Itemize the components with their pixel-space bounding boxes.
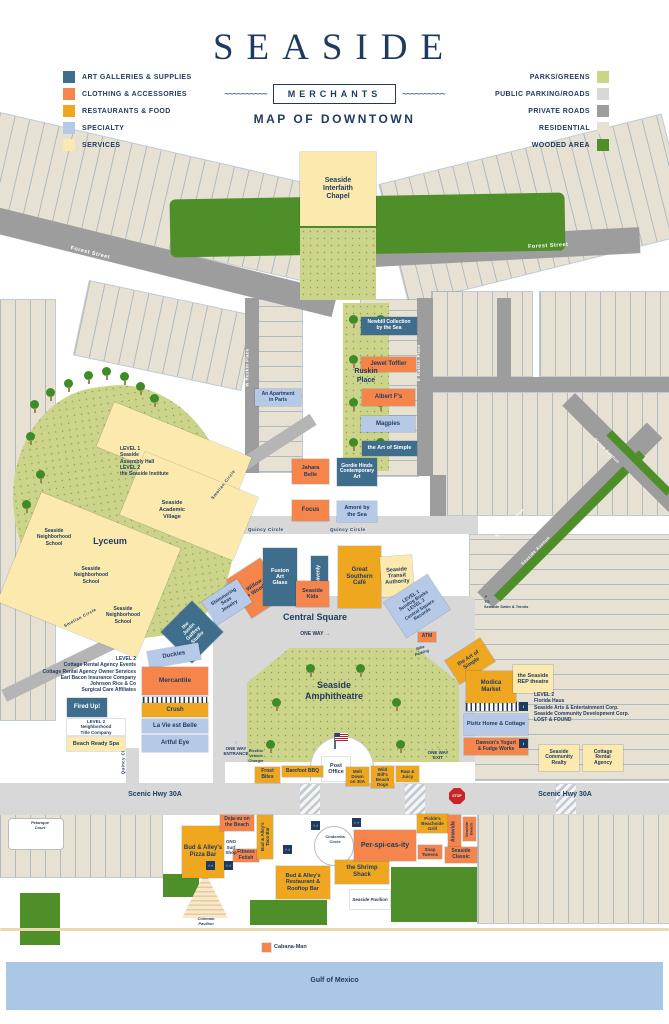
- legend-swatch: [63, 71, 75, 83]
- north-south-road-east: [497, 298, 511, 378]
- dune-green-right: [391, 867, 477, 922]
- legend-swatch: [63, 122, 75, 134]
- la-vie-est-belle: La Vie est Belle: [142, 719, 208, 733]
- seaside-neighborhood-school-2-line: School: [70, 579, 112, 585]
- coleman-pavilion: ColemanPavilion: [185, 916, 227, 926]
- florida-haus-lost-and-found: LEVEL 2Florida HausSeaside Arts & Entert…: [534, 692, 640, 723]
- tree-icon: [349, 315, 358, 324]
- bud-and-alleys-restaurant-rooftop-bar: Bud & Alley's Restaurant & Rooftop Bar: [276, 866, 330, 899]
- cottage-rental-agency: Cottage Rental Agency: [583, 745, 623, 771]
- assembly-hall-institute: LEVEL 1SeasideAssembly HallLEVEL 2the Se…: [120, 446, 192, 477]
- artful-eye: Artful Eye: [142, 735, 208, 752]
- quincy-circle-east: Quincy Circle: [330, 527, 366, 532]
- cinderella-circle: CinderellaCircle: [317, 834, 353, 844]
- albert-fs: Albert F's: [362, 389, 415, 406]
- cross-road-east: [417, 377, 669, 392]
- frost-bites: Frost Bites: [255, 767, 280, 783]
- seaside-neighborhood-school-1: SeasideNeighborhoodSchool: [33, 528, 75, 547]
- legend-swatch: [597, 122, 609, 134]
- wave-ornament-left: ~~~~~~~~~~: [224, 89, 267, 99]
- ruskin-place-label-line: Ruskin: [341, 368, 391, 377]
- entrance-one-way: ↑ONE WAYENTRANCE: [214, 740, 258, 757]
- legend-label: CLOTHING & ACCESSORIES: [82, 91, 187, 98]
- duckies: Duckies: [147, 643, 201, 669]
- legend-swatch: [63, 105, 75, 117]
- amphitheatre-label-line: Amphitheatre: [288, 691, 380, 702]
- dune-green-mid: [250, 900, 327, 925]
- page-title: SEASIDE: [0, 26, 669, 69]
- raw-and-juicy: Raw & Juicy: [396, 766, 419, 782]
- wild-bills-beach-dogs: Wild Bill's Beach Dogs: [371, 766, 394, 788]
- legend-swatch: [63, 88, 75, 100]
- restroom-icon: ♀♂: [311, 821, 320, 830]
- gulf-of-mexico: Gulf of Mexico: [0, 977, 669, 986]
- electric-vehicle-charger-line: Charger: [240, 758, 272, 763]
- legend-row: PARKS/GREENS: [530, 71, 609, 83]
- legend-label: SERVICES: [82, 142, 120, 149]
- tree-icon: [30, 400, 39, 409]
- tree-icon: [356, 664, 365, 673]
- legend-row: RESIDENTIAL: [539, 122, 609, 134]
- pizitz-home-and-cottage: Pizitz Home & Cottage: [464, 714, 528, 735]
- amavida: Amavida: [448, 815, 461, 848]
- legend-row: SPECIALTY: [63, 122, 192, 134]
- neighborhood-title-company: LEVEL 2 Neighborhood Title Company: [67, 719, 125, 735]
- jahara-belle: Jahara Belle: [292, 459, 329, 484]
- restroom-icon: ♀♂: [283, 845, 292, 854]
- seaside-neighborhood-school-3-line: School: [100, 619, 146, 625]
- exit-one-way: ↓ONE WAYEXIT: [418, 744, 458, 761]
- legend-row: PUBLIC PARKING/ROADS: [495, 88, 609, 100]
- tree-icon: [272, 698, 281, 707]
- to-seaside-swim-tennis-line: Seaside Swim & Tennis: [484, 604, 556, 609]
- legend-row: RESTAURANTS & FOOD: [63, 105, 192, 117]
- tree-icon: [26, 432, 35, 441]
- e-ruskin-place: E Ruskin Place: [416, 344, 421, 381]
- fusion-art-glass: Fusion Art Glass: [263, 548, 297, 606]
- legend-swatch: [63, 139, 75, 151]
- lyceum-label-line: Lyceum: [80, 536, 140, 547]
- quincy-circle-west: Quincy Circle: [248, 527, 284, 532]
- seaside-neighborhood-school-1-line: School: [33, 541, 75, 547]
- tree-icon: [136, 382, 145, 391]
- scenic-hwy-30a-east: Scenic Hwy 30A: [500, 791, 630, 800]
- seaside-neighborhood-school-1-line: Neighborhood: [33, 534, 75, 540]
- assembly-hall-institute-line: the Seaside Institute: [120, 471, 192, 477]
- us-flag-icon: [335, 733, 348, 741]
- seaside-academic-village: SeasideAcademicVillage: [144, 500, 200, 521]
- lyceum-label: Lyceum: [80, 536, 140, 547]
- beach-ready-spa: Beach Ready Spa: [67, 737, 125, 751]
- tree-icon: [349, 438, 358, 447]
- seaside-neighborhood-school-3: SeasideNeighborhoodSchool: [100, 606, 146, 625]
- restroom-icon: ♀♂: [352, 818, 361, 827]
- legend-swatch: [597, 71, 609, 83]
- seaside-academic-village-line: Village: [144, 514, 200, 521]
- mercantile: Mercantile: [142, 667, 208, 695]
- legend-label: PRIVATE ROADS: [528, 108, 590, 115]
- seaside-neighborhood-school-3-line: Neighborhood: [100, 612, 146, 618]
- newbill-collection-by-the-sea: Newbill Collection by the Sea: [361, 317, 417, 335]
- legend-label: PARKS/GREENS: [530, 74, 590, 81]
- scenic-hwy-30a-west-line: Scenic Hwy 30A: [90, 791, 220, 800]
- residential-beach-east: [478, 815, 669, 923]
- the-seaside-rep-theatre: the Seaside REP theatre: [513, 665, 553, 693]
- cabana-man: Cabana-Man: [274, 944, 326, 951]
- the-art-of-simple-ruskin: the Art of Simple: [362, 441, 417, 456]
- wave-ornament-right: ~~~~~~~~~~: [402, 89, 445, 99]
- legend-swatch: [597, 105, 609, 117]
- the-shrimp-shack: the Shrimp Shack: [335, 860, 389, 884]
- legend-right: PARKS/GREENSPUBLIC PARKING/ROADSPRIVATE …: [495, 71, 609, 151]
- crosswalk: [300, 784, 320, 814]
- legend-row: ART GALLERIES & SUPPLIES: [63, 71, 192, 83]
- amphitheatre-label-line: Seaside: [288, 680, 380, 691]
- legend-row: PRIVATE ROADS: [528, 105, 609, 117]
- dune-green-left: [20, 893, 60, 945]
- crosswalk: [405, 784, 425, 814]
- one-way-center: ONE WAY →: [282, 631, 348, 637]
- seaside-interfaith-chapel: Seaside Interfaith Chapel: [300, 152, 376, 226]
- seaside-beach: Seaside Beach: [463, 817, 476, 841]
- snap-tweens: Snap Tweens: [418, 845, 442, 859]
- deja-vu-on-the-beach: Deja-vu on the Beach: [220, 815, 254, 831]
- cottage-rental-agency-events-line: Cottage Rental Agency Owner Services: [28, 669, 136, 675]
- quincy-circle-road-south: [126, 748, 139, 783]
- cottage-rental-agency-events-line: Surgical Care Affiliates: [28, 687, 136, 693]
- fired-up: Fired Up!: [67, 698, 107, 717]
- tree-icon: [349, 398, 358, 407]
- focus: Focus: [292, 500, 329, 521]
- petanque-court: PetanqueCourt: [16, 820, 64, 830]
- amphitheatre-label: SeasideAmphitheatre: [288, 680, 380, 703]
- ruskin-to-quincy-road: [430, 475, 446, 521]
- per-spi-cas-ity: Per-spi-cas-ity: [354, 830, 416, 861]
- seaside-neighborhood-school-2-line: Neighborhood: [70, 572, 112, 578]
- central-square-label: Central Square: [268, 612, 362, 623]
- seaside-neighborhood-school-2: SeasideNeighborhoodSchool: [70, 566, 112, 585]
- info-icon: i: [519, 739, 528, 748]
- legend-left: ART GALLERIES & SUPPLIESCLOTHING & ACCES…: [63, 71, 192, 151]
- residential-forest-left: [74, 281, 256, 390]
- tree-icon: [150, 394, 159, 403]
- ono-surf-shop-line: Shop: [219, 850, 243, 856]
- tree-icon: [396, 740, 405, 749]
- legend-label: PUBLIC PARKING/ROADS: [495, 91, 590, 98]
- legend-swatch: [597, 139, 609, 151]
- central-square-label-line: Central Square: [268, 612, 362, 623]
- petanque-court-line: Court: [16, 825, 64, 830]
- magpies: Magpies: [361, 416, 415, 432]
- seaside-merchants-map: SEASIDE ~~~~~~~~~~ MERCHANTS ~~~~~~~~~~ …: [0, 0, 669, 1024]
- tree-icon: [46, 388, 55, 397]
- scenic-hwy-30a-east-line: Scenic Hwy 30A: [500, 791, 630, 800]
- seaside-kids: Seaside Kids: [296, 581, 329, 607]
- exit-one-way-line: EXIT: [418, 755, 458, 761]
- tree-icon: [84, 371, 93, 380]
- one-way-center-line: ONE WAY →: [282, 631, 348, 637]
- cabana-man-marker: [262, 943, 271, 952]
- an-apartment-in-paris: An Apartment in Paris: [255, 389, 301, 406]
- seaside-academic-village-line: Seaside: [144, 500, 200, 507]
- legend-row: CLOTHING & ACCESSORIES: [63, 88, 192, 100]
- stop-sign: STOP: [449, 788, 465, 804]
- amore-by-the-sea: Amoré by the Sea: [337, 501, 377, 522]
- tree-icon: [22, 500, 31, 509]
- legend-label: WOODED AREA: [532, 142, 590, 149]
- w-ruskin-place: W Ruskin Place: [245, 348, 250, 386]
- scenic-hwy-30a-west: Scenic Hwy 30A: [90, 791, 220, 800]
- seaside-community-realty: Seaside Community Realty: [539, 745, 579, 771]
- cottage-rental-agency-events: LEVEL 2Cottage Rental Agency EventsCotta…: [28, 656, 136, 694]
- legend-label: ART GALLERIES & SUPPLIES: [82, 74, 192, 81]
- legend-label: RESIDENTIAL: [539, 125, 590, 132]
- seaside-academic-village-line: Academic: [144, 507, 200, 514]
- ono-surf-shop: ONOSurfShop: [219, 839, 243, 856]
- great-southern-cafe: Great Southern Café: [338, 546, 381, 608]
- ruskin-place-label-line: Place: [341, 377, 391, 386]
- merchants-badge: MERCHANTS: [273, 84, 397, 104]
- info-icon: i: [519, 702, 528, 711]
- tree-icon: [392, 698, 401, 707]
- residential-east-2: [540, 292, 669, 376]
- florida-haus-lost-and-found-line: LOST & FOUND: [534, 717, 640, 723]
- legend-label: RESTAURANTS & FOOD: [82, 108, 171, 115]
- cinderella-circle-line: Circle: [317, 839, 353, 844]
- coleman-pavilion-line: Pavilion: [185, 921, 227, 926]
- legend-row: WOODED AREA: [532, 139, 609, 151]
- pickles-beachside-grill: Pickle's Beachside Grill: [417, 814, 448, 833]
- gordie-hinds-contemporary-art: Gordie Hinds Contemporary Art: [337, 458, 377, 486]
- barefoot-bbq: Barefoot BBQ: [282, 766, 323, 777]
- bud-and-alleys-pizza-bar: Bud & Alley's Pizza Bar: [182, 826, 224, 878]
- chapel-lawn: [300, 228, 376, 300]
- tree-icon: [306, 664, 315, 673]
- modica-market: Modica Market: [466, 671, 516, 703]
- crush: Crush: [142, 703, 208, 717]
- dune-edge: [0, 928, 669, 931]
- melt-down-on-30a: Melt Down on 30A: [346, 767, 369, 786]
- seaside-pavilion: Seaside Pavilion: [350, 890, 390, 909]
- tree-icon: [64, 379, 73, 388]
- tree-icon: [36, 470, 45, 479]
- ruskin-place-label: RuskinPlace: [341, 368, 391, 386]
- gulf-of-mexico-water: [6, 962, 663, 1010]
- gulf-of-mexico-line: Gulf of Mexico: [0, 977, 669, 986]
- seaside-classic: Seaside Classic: [445, 847, 477, 863]
- ticket-stripe-bar: [466, 702, 518, 711]
- tree-icon: [349, 355, 358, 364]
- legend-swatch: [597, 88, 609, 100]
- entrance-one-way-line: ENTRANCE: [214, 751, 258, 757]
- legend-row: SERVICES: [63, 139, 192, 151]
- restroom-icon: ♀♂: [224, 861, 233, 870]
- legend-label: SPECIALTY: [82, 125, 124, 132]
- cabana-man-line: Cabana-Man: [274, 944, 326, 951]
- to-seaside-swim-tennis: ↗TOSeaside Swim & Tennis: [484, 594, 556, 609]
- tree-icon: [102, 367, 111, 376]
- restroom-icon: ♀♂: [206, 861, 215, 870]
- bud-and-alleys-taco-bar: Bud & Alley's Taco Bar: [257, 815, 273, 859]
- tree-icon: [120, 372, 129, 381]
- residential-east-1: [432, 292, 532, 376]
